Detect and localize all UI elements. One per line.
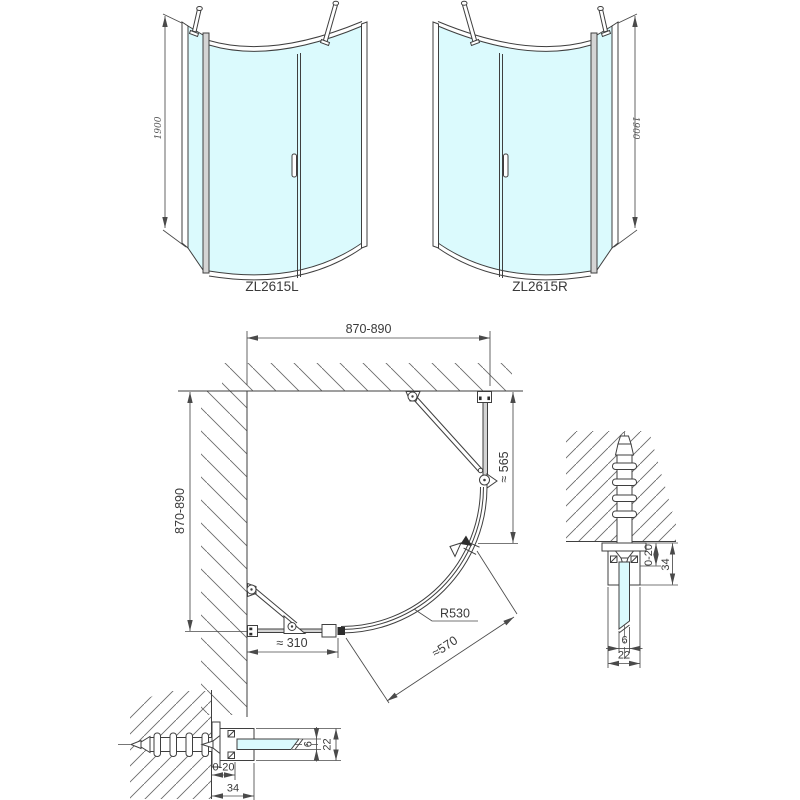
- section-side-depth-text: 34: [660, 558, 672, 570]
- door-stop-profile: [322, 625, 336, 638]
- elevation-left-unit: 1900 ZL2615L: [154, 1, 367, 294]
- technical-drawing: 1900 ZL2615L 1900 ZL2615R: [0, 0, 800, 800]
- elevation-left-height-dim: 1900: [154, 116, 164, 139]
- section-side-width-text: 22: [618, 650, 630, 662]
- section-bottom-width-text: 22: [322, 738, 334, 750]
- plan-view: 870-890 870-890 ≈ 565 R530 ≈570 ≈ 310: [173, 322, 523, 717]
- section-bottom-adjust-text: 0-20: [212, 762, 234, 774]
- wall-hatch-left: [201, 391, 247, 715]
- door-seal-block: [338, 627, 346, 635]
- wall-bracket-bottom: [248, 626, 258, 637]
- section-side-glass-text: 6: [621, 635, 627, 647]
- plan-width-dim-text: 870-890: [346, 322, 392, 336]
- fixed-panel-top: [483, 391, 488, 479]
- glass-pane-section: [237, 739, 303, 750]
- entry-dimension: [346, 551, 517, 703]
- section-bottom-depth-text: 34: [227, 783, 239, 795]
- wall-hatch-top: [222, 363, 512, 391]
- shower-enclosure-drawing: 1900 ZL2615L 1900 ZL2615R: [0, 0, 800, 800]
- elevation-left-model-label: ZL2615L: [245, 279, 299, 294]
- fixed-panel-dim-text: ≈ 565: [497, 451, 511, 482]
- section-wall-profile-side: 0-20 34 6 22: [566, 431, 678, 668]
- section-bottom-glass-text: 6: [303, 741, 315, 747]
- plan-depth-dim-text: 870-890: [173, 488, 187, 534]
- elevation-right-height-dim: 1900: [630, 117, 640, 140]
- elevation-right-unit: 1900 ZL2615R: [433, 1, 640, 294]
- radius-dim-text: R530: [440, 607, 470, 621]
- section-side-adjust-text: 0-20: [643, 544, 655, 566]
- support-brace-top: [406, 392, 483, 473]
- glass-pane-section: [619, 562, 630, 633]
- elevation-right-model-label: ZL2615R: [512, 279, 568, 294]
- door-pivot-hinge: [480, 474, 498, 488]
- side-panel-dim-text: ≈ 310: [276, 636, 307, 650]
